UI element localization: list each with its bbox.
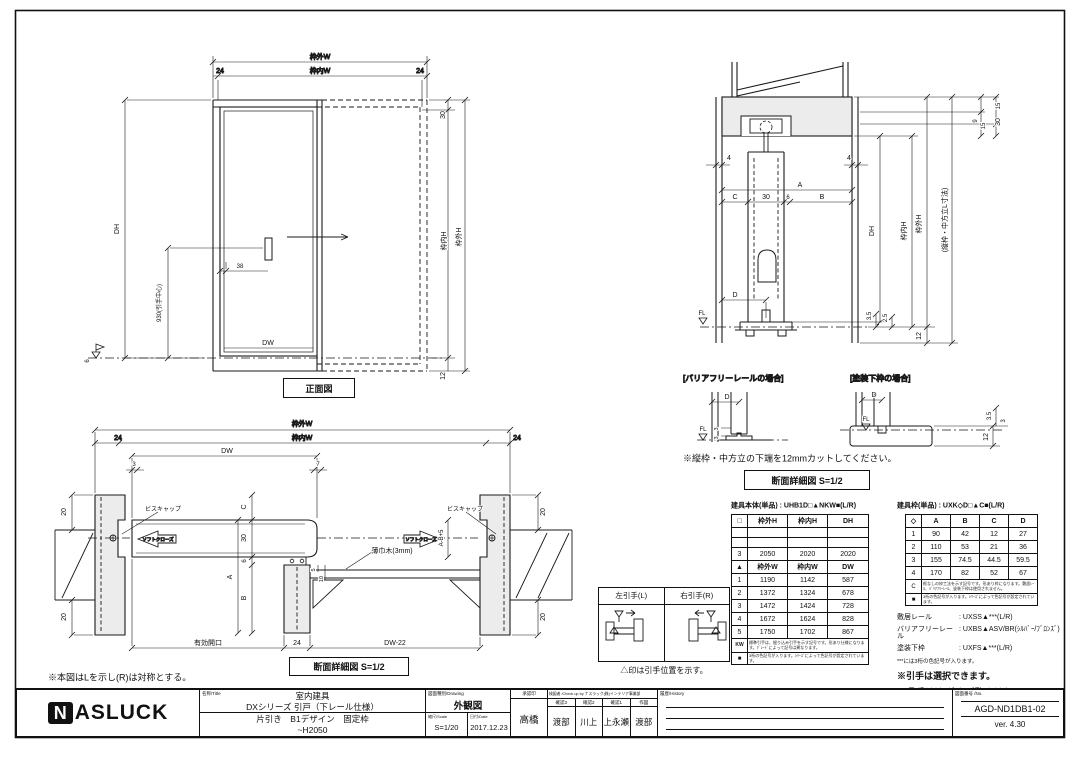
- history-cell: 履歴/History: [657, 690, 952, 736]
- plan-dim-dw: DW: [221, 448, 233, 455]
- sec-dim-wakugai-h: 枠外H: [914, 214, 923, 233]
- product-height-range: ~H2050: [200, 725, 425, 736]
- front-view-title-box: 正面図: [283, 378, 355, 398]
- approval-cell: 承認印 高橋: [510, 690, 547, 736]
- date-value: 2017.12.23: [468, 723, 510, 732]
- table-row: 314721424728: [732, 600, 869, 613]
- plan-dim-yuko-kaiko: 有効開口: [194, 638, 222, 647]
- sec-dim-3-5: 3.5: [867, 311, 873, 320]
- section-view-note: ※縦枠・中方立の下端を12mmカットしてください。: [683, 455, 896, 464]
- handle-selector-box: 左引手(L) 右引手(R): [598, 587, 730, 662]
- front-dim-12: 12: [440, 372, 447, 380]
- rail-info-row: 塗装下枠: UXFS▲***(L/R): [897, 645, 1072, 652]
- plan-dim-5: 5: [311, 568, 317, 571]
- front-dim-wakugai-w: 枠外W: [310, 52, 331, 61]
- plan-dim-dw-22: DW-22: [384, 640, 406, 647]
- plan-view-note: ※本図はLを示し(R)は対称とする。: [48, 674, 191, 683]
- sec-dim-c: C: [732, 194, 737, 201]
- date-header: 日付/Date: [470, 714, 488, 720]
- checker-col: 確認3 渡部: [548, 699, 576, 737]
- front-dim-wakunai-h: 枠内H: [439, 231, 448, 250]
- plan-dim-a: A: [227, 574, 234, 579]
- drawing-number-header: 図面番号 /No.: [955, 691, 983, 697]
- handle-left-label: 左引手(L): [599, 588, 665, 604]
- sec-dim-2-5: 2.5: [883, 313, 889, 322]
- plan-dim-10: 10: [319, 576, 325, 582]
- plan-dim-20-tl: 20: [61, 508, 68, 516]
- table-row: 315574.544.559.5: [906, 554, 1038, 567]
- approval-header: 承認印: [511, 690, 547, 699]
- table-row: 3205020202020: [732, 548, 869, 561]
- front-dim-handle-offset: 38: [237, 264, 244, 270]
- plan-label-screwcap-right: ビスキャップ: [447, 505, 483, 513]
- approval-name: 高橋: [511, 712, 547, 726]
- table-row: [732, 538, 869, 548]
- sec-dim-dh: DH: [869, 226, 876, 236]
- plan-dim-wakunai-w: 枠内W: [292, 433, 313, 442]
- plan-dim-left-24: 24: [114, 435, 122, 442]
- drawing-version: ver. 4.30: [953, 720, 1067, 729]
- table-row: 213721324678: [732, 587, 869, 600]
- sec-dim-a: A: [798, 182, 803, 189]
- plan-dim-20-br: 20: [540, 613, 547, 621]
- rail-info-color-note: ***には3桁の色記号が入ります。: [897, 657, 1072, 665]
- plan-view-title: 断面詳細図 S=1/2: [313, 660, 384, 673]
- checker-name: 渡部: [548, 716, 575, 728]
- sec-dim-6: 6: [786, 195, 790, 201]
- sec-det-right-12: 12: [983, 433, 990, 441]
- checker-col: 確認1 上永瀬: [603, 699, 631, 737]
- rail-info-row: バリアフリーレール: UXBS▲ASV/BR(ｼﾙﾊﾞｰ/ﾌﾞﾛﾝｽﾞ): [897, 626, 1072, 640]
- table-row: 4170825267: [906, 567, 1038, 580]
- title-cell: 名称/Title 室内建具 DXシリーズ 引戸（下レール仕様） 片引き B1デザ…: [199, 690, 425, 736]
- sec-dim-d: D: [732, 292, 737, 299]
- plan-dim-wakugai-w: 枠外W: [292, 419, 313, 428]
- history-header: 履歴/History: [660, 691, 684, 697]
- logo-n-mark: N: [48, 702, 73, 724]
- sec-label-fl: FL: [698, 311, 706, 317]
- sec-det-right-3-5: 3.5: [987, 411, 993, 420]
- sec-det-right-d: D: [871, 392, 876, 399]
- sec-dim-12: 12: [916, 332, 923, 340]
- plan-dim-3: 3: [132, 462, 136, 468]
- sec-dim-tatewaku: (縦枠・中方立L寸法): [940, 188, 949, 253]
- product-series: DXシリーズ 引戸（下レール仕様）: [200, 702, 425, 713]
- body-table-title: 建具本体(単品) : UHB1D□▲NKW■(L/R): [731, 503, 856, 510]
- product-category: 室内建具: [200, 691, 425, 702]
- sec-dim-30r: 30: [995, 118, 1002, 126]
- section-view-title-box: 断面詳細図 S=1/2: [744, 470, 870, 490]
- checkers-cell: 検図者 /Check up by ナスラック(株)インテリア事業部 確認3 渡部…: [547, 690, 657, 736]
- checker-name: 渡部: [631, 716, 658, 728]
- front-dim-wakugai-h: 枠外H: [454, 227, 463, 246]
- checker-col: 確認2 川上: [576, 699, 604, 737]
- frame-table-title: 建具枠(単品) : UXK◇D□▲C■(L/R): [897, 503, 1004, 510]
- plan-dim-7: 7: [316, 462, 320, 468]
- body-table: □枠外H枠内HDH 3205020202020 ▲枠外W枠内WDW 111901…: [731, 514, 869, 665]
- scale-value: S=1/20: [426, 723, 467, 732]
- vertical-section-drawing: 4 4 A C 30 6 B D FL 9 15 15 30 DH 枠内H 枠外…: [683, 62, 1008, 449]
- plan-dim-20-tr: 20: [540, 508, 547, 516]
- handle-selector-note: △印は引手位置を示す。: [620, 667, 707, 675]
- handle-choice-note: ※引手は選択できます。: [897, 669, 1072, 682]
- front-dim-30: 30: [440, 111, 447, 119]
- front-dim-dw: DW: [262, 340, 274, 347]
- checker-name: 川上: [576, 716, 603, 728]
- rail-info: 敷居レール: UXSS▲***(L/R) バリアフリーレール: UXBS▲ASV…: [897, 614, 1072, 698]
- sec-dim-wakunai-h: 枠内H: [899, 221, 908, 240]
- checker-name: 上永瀬: [603, 716, 630, 728]
- plan-label-softclose-right: ソフトクローズ: [405, 536, 437, 543]
- plan-dim-a-b-5: A-B+5: [439, 529, 445, 547]
- front-elevation-drawing: 枠外W 24 枠内W 24 DH 930(引手中心) 38 6 30 枠内H 枠…: [85, 52, 470, 380]
- sec-dim-9: 9: [973, 119, 979, 123]
- checkers-header: 検図者 /Check up by ナスラック(株)インテリア事業部: [548, 690, 657, 699]
- door-handle: [265, 238, 272, 260]
- sec-det-left-3b: 3: [714, 436, 720, 439]
- table-row: 416721624828: [732, 613, 869, 626]
- section-view-title: 断面詳細図 S=1/2: [771, 474, 842, 487]
- sec-dim-4-left: 4: [727, 155, 731, 162]
- drawing-number-cell: 図面番号 /No. AGD-ND1DB1-02 ver. 4.30: [952, 690, 1067, 736]
- plan-label-softclose-left: ソフトクローズ: [142, 536, 174, 543]
- drawing-type-value: 外観図: [426, 698, 510, 712]
- sec-dim-15b: 15: [996, 102, 1002, 109]
- front-view-title: 正面図: [305, 382, 332, 395]
- plan-view-title-box: 断面詳細図 S=1/2: [289, 657, 409, 676]
- rail-info-row: 敷居レール: UXSS▲***(L/R): [897, 614, 1072, 621]
- sec-det-right-fl: FL: [862, 417, 870, 423]
- drawing-sheet: 枠外W 24 枠内W 24 DH 930(引手中心) 38 6 30 枠内H 枠…: [0, 0, 1080, 764]
- table-row: 190421227: [906, 528, 1038, 541]
- front-dim-dh: DH: [114, 224, 121, 234]
- sec-det-left-fl: FL: [699, 427, 707, 433]
- front-dim-wakunai-w: 枠内W: [310, 66, 331, 75]
- sec-case-left-label: [バリアフリーレールの場合]: [683, 373, 783, 383]
- scale-header: 縮尺/Scale: [428, 714, 447, 720]
- plan-dim-6: 6: [242, 559, 248, 563]
- plan-dim-20-bl: 20: [61, 613, 68, 621]
- plan-dim-right-24: 24: [513, 435, 521, 442]
- drawing-number: AGD-ND1DB1-02: [961, 701, 1059, 717]
- sec-dim-b: B: [820, 194, 825, 201]
- sec-dim-4-right: 4: [847, 155, 851, 162]
- sec-case-right-label: [塗装下枠の場合]: [850, 373, 910, 383]
- sec-det-right-3: 3: [1001, 419, 1007, 423]
- table-row: 111901142587: [732, 574, 869, 587]
- sec-det-left-3a: 3: [714, 427, 720, 430]
- table-row: [732, 528, 869, 538]
- plan-section-drawing: 枠外W 24 枠内W 24 DW 3 7 20 20 20 20 ビスキャップ …: [55, 419, 572, 651]
- drawing-type-cell: 図面種別/Drawing 外観図 縮尺/Scale S=1/20 日付/Date…: [425, 690, 510, 736]
- plan-dim-b: B: [241, 595, 248, 600]
- title-block: N ASLUCK 名称/Title 室内建具 DXシリーズ 引戸（下レール仕様）…: [15, 688, 1065, 738]
- front-dim-6: 6: [85, 359, 91, 363]
- sec-dim-30: 30: [762, 194, 770, 201]
- logo-cell: N ASLUCK: [17, 690, 199, 736]
- table-row: 2110532136: [906, 541, 1038, 554]
- product-type: 片引き B1デザイン 固定枠: [200, 714, 425, 725]
- logo-wordmark: ASLUCK: [75, 701, 169, 725]
- plan-dim-30: 30: [241, 534, 248, 542]
- nasluck-logo: N ASLUCK: [17, 690, 199, 736]
- checker-col: 作図 渡部: [631, 699, 658, 737]
- plan-label-screwcap-left: ビスキャップ: [145, 505, 181, 513]
- front-dim-right-24: 24: [416, 68, 424, 75]
- front-dim-left-24: 24: [216, 68, 224, 75]
- sec-det-left-d: D: [724, 394, 729, 401]
- plan-dim-24: 24: [293, 640, 301, 647]
- sec-dim-15a: 15: [981, 122, 987, 129]
- plan-dim-c: C: [241, 504, 248, 509]
- handle-right-label: 右引手(R): [665, 588, 730, 604]
- plan-label-usubaki: 薄巾木(3mm): [371, 546, 412, 555]
- frame-table: ◇ABCD 190421227 2110532136 315574.544.55…: [905, 514, 1038, 606]
- front-dim-handle-center: 930(引手中心): [155, 284, 163, 322]
- table-row: 517501702867: [732, 626, 869, 639]
